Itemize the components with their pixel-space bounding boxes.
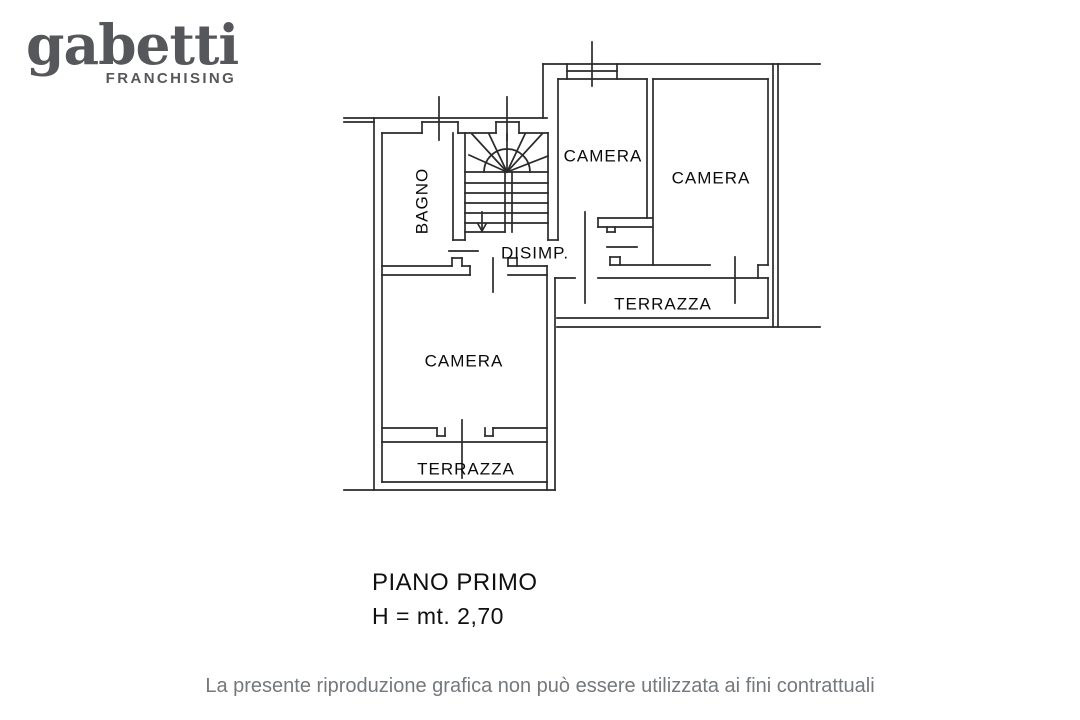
floor-height: H = mt. 2,70 <box>372 603 538 630</box>
room-label-bagno: BAGNO <box>413 168 432 234</box>
floor-title: PIANO PRIMO <box>372 569 538 597</box>
plan-caption: PIANO PRIMO H = mt. 2,70 <box>372 569 538 630</box>
floorplan-page: gabetti FRANCHISING <box>0 0 1080 720</box>
room-label-camera-bottom: CAMERA <box>425 352 504 371</box>
floor-plan: BAGNO CAMERA CAMERA CAMERA DISIMP. TERRA… <box>0 0 1080 720</box>
staircase <box>465 134 548 232</box>
room-label-disimpegno: DISIMP. <box>501 244 569 263</box>
disclaimer-text: La presente riproduzione grafica non può… <box>0 675 1080 698</box>
room-label-terrazza-bottom: TERRAZZA <box>417 460 515 479</box>
room-label-terrazza-right: TERRAZZA <box>614 295 712 314</box>
room-labels: BAGNO CAMERA CAMERA CAMERA DISIMP. TERRA… <box>413 147 751 479</box>
room-label-camera-top: CAMERA <box>564 147 643 166</box>
door-window-marks <box>449 212 735 478</box>
plan-wall-lines <box>344 42 820 490</box>
room-label-camera-right: CAMERA <box>672 169 751 188</box>
